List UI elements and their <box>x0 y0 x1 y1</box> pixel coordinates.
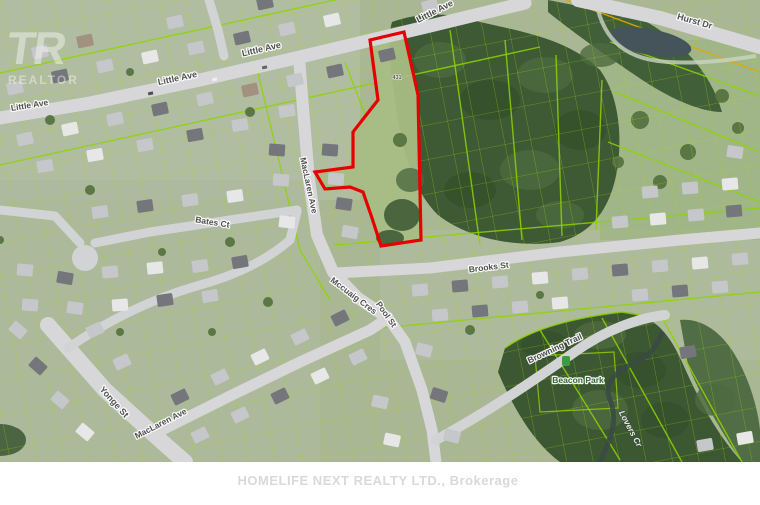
brokerage-watermark: HOMELIFE NEXT REALTY LTD., Brokerage <box>238 473 519 488</box>
brokerage-band: HOMELIFE NEXT REALTY LTD., Brokerage <box>0 462 760 505</box>
label-beacon-park: Beacon Park <box>552 375 604 385</box>
cul-de-sac <box>72 245 98 271</box>
trreb-logo-wordmark: REALTOR <box>8 73 79 87</box>
label-house-number: 431 <box>392 75 401 81</box>
park-marker-icon <box>562 356 570 366</box>
listing-map-screenshot: Little Ave Little Ave Little Ave Little … <box>0 0 760 505</box>
trreb-logo-letters: TR <box>4 22 70 74</box>
satellite-map: Little Ave Little Ave Little Ave Little … <box>0 0 760 505</box>
